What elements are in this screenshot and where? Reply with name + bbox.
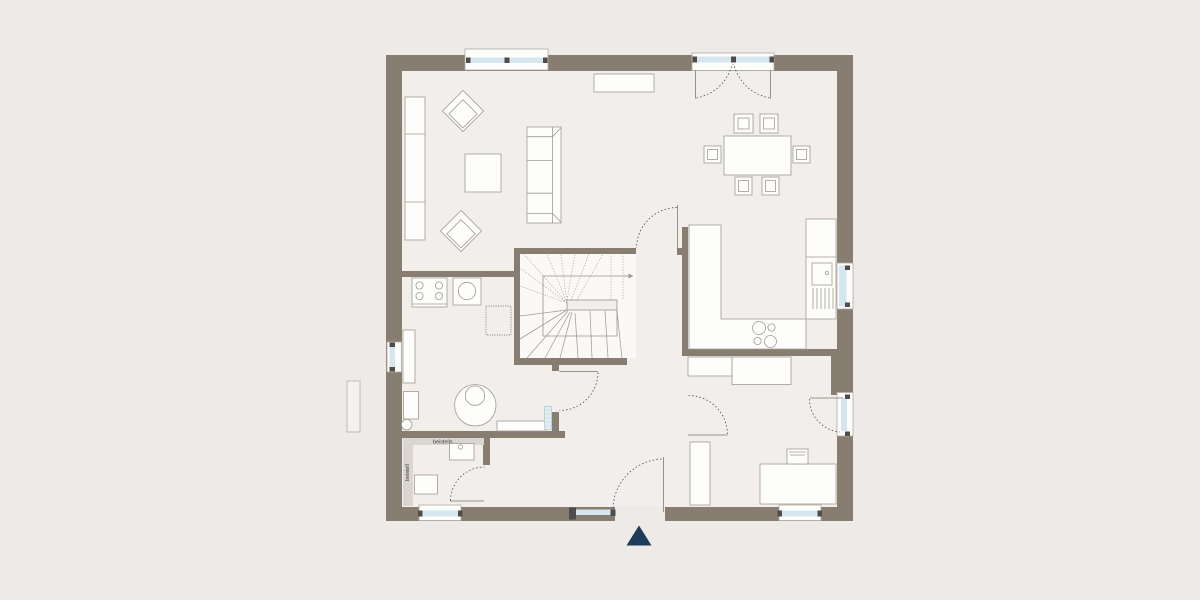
svg-text:beistell: beistell — [405, 464, 411, 481]
